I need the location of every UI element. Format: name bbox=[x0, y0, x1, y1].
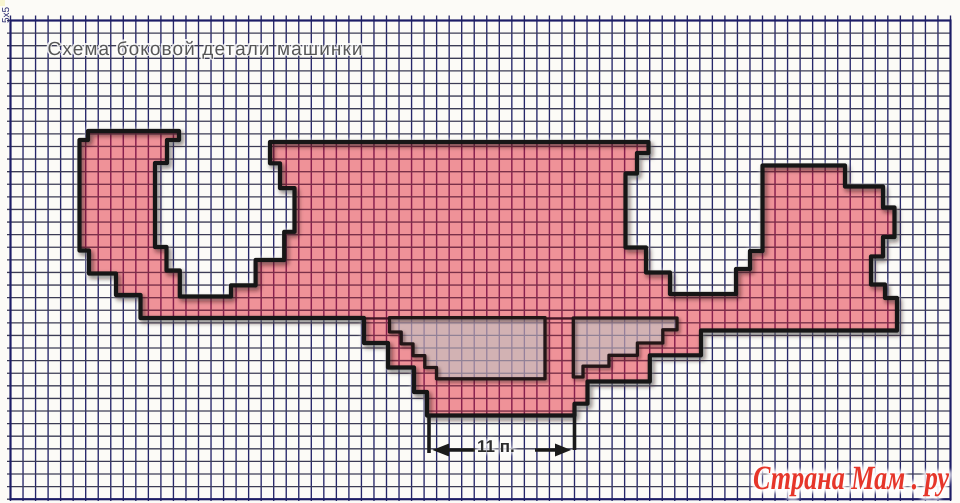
svg-text:Страна Мам . ру: Страна Мам . ру bbox=[753, 460, 950, 497]
svg-text:Схема боковой детали машинки: Схема боковой детали машинки bbox=[48, 39, 364, 60]
svg-text:5х5: 5х5 bbox=[1, 6, 12, 23]
svg-text:11 п.: 11 п. bbox=[477, 437, 515, 456]
